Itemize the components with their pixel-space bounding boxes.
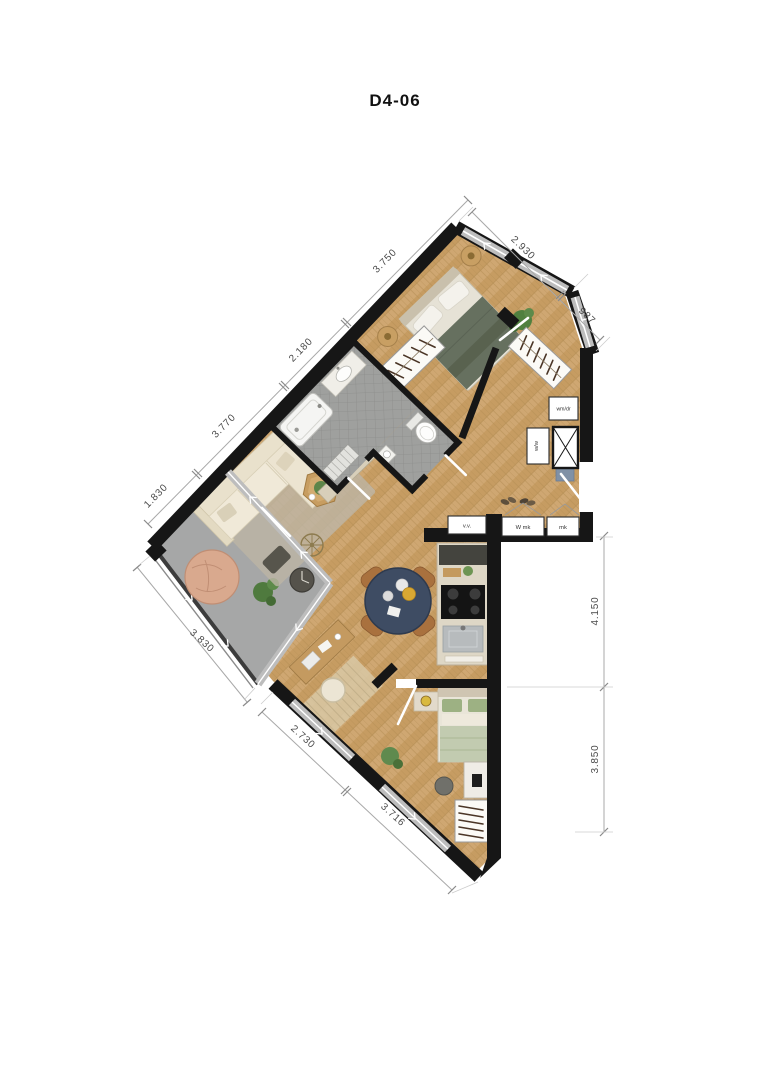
dresser: [464, 762, 490, 798]
entry-door-opening: [579, 462, 594, 512]
wardrobe-2: [455, 800, 488, 842]
dim-nw1: 3.750: [371, 247, 399, 275]
cutting-board: [443, 568, 461, 577]
bedroom2-wall: [416, 679, 487, 688]
mk-label: mk: [559, 525, 567, 531]
exterior-wall-east-upper: [580, 348, 593, 462]
wmk-label: W mk: [516, 525, 531, 531]
wall-stub: [486, 514, 502, 530]
side-table: [290, 568, 314, 592]
coffee-table-cup: [309, 494, 315, 500]
balcony-pouf: [185, 550, 239, 604]
kitchen-plant: [463, 566, 473, 576]
kitchen-shelf: [445, 656, 483, 662]
floor-plan-page: D4-06: [0, 0, 772, 1092]
kitchen: [437, 543, 489, 665]
dim-sw1: 3.830: [187, 627, 216, 655]
kitchen-cabinet: [439, 545, 487, 565]
dim-nw2: 2.180: [287, 336, 315, 364]
plate: [383, 591, 393, 601]
bed-2: [438, 688, 492, 762]
cooktop: [441, 585, 485, 619]
dining-area: [358, 564, 438, 639]
ww-label: w/w: [534, 440, 540, 452]
wmdr-label: wm/dr: [556, 407, 570, 413]
plan-title: D4-06: [369, 91, 420, 110]
bowl: [403, 588, 416, 601]
shaft-box: [553, 427, 578, 468]
kitchen-sink: [443, 626, 483, 653]
vv-label: v.v.: [463, 524, 472, 530]
dining-table: [365, 568, 431, 634]
nightstand-2: [414, 692, 438, 711]
desk-chair: [321, 678, 345, 702]
dim-e2: 3.850: [590, 744, 601, 773]
floor-plan-drawing: D4-06: [0, 0, 772, 1092]
bedroom2-door-opening: [396, 679, 416, 688]
exterior-wall-se: [487, 542, 501, 858]
dim-e1: 4.150: [590, 596, 601, 625]
stool: [435, 777, 453, 795]
